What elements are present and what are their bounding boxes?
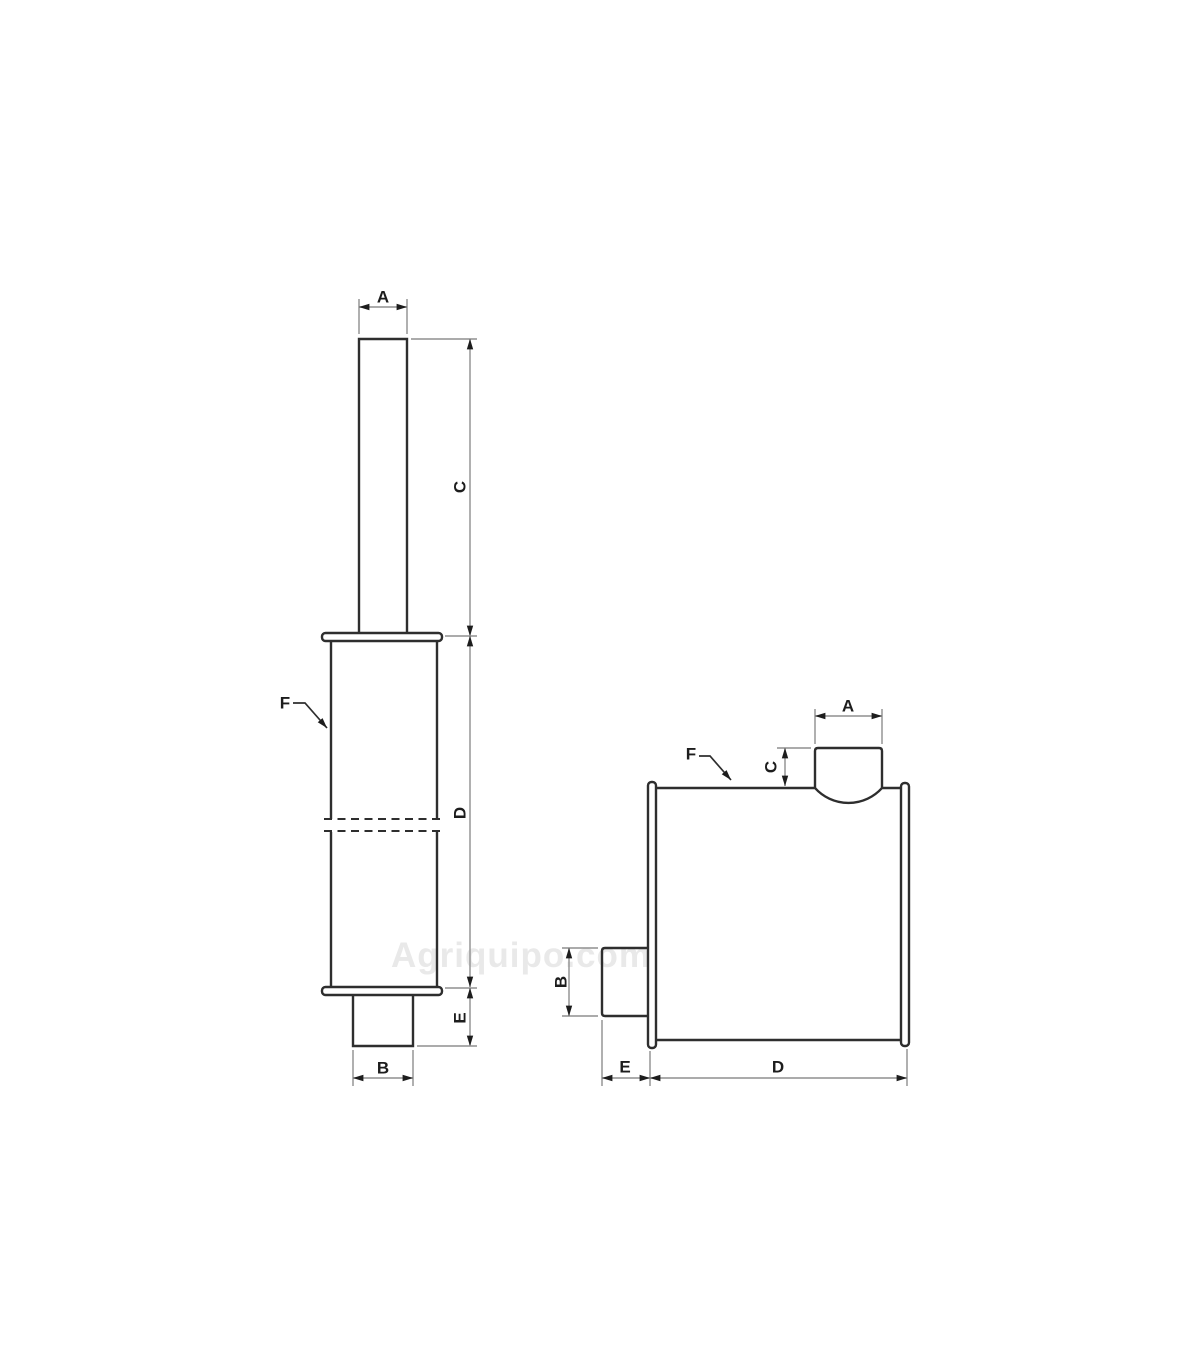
side-left-pipe bbox=[602, 948, 648, 1016]
front-view-dimensions bbox=[353, 299, 477, 1086]
front-dim-c-label: C bbox=[452, 481, 469, 493]
front-dim-e-label: E bbox=[452, 1012, 469, 1023]
front-bottom-cap bbox=[322, 987, 442, 995]
side-left-cap bbox=[648, 782, 656, 1048]
side-dim-e-label: E bbox=[619, 1059, 630, 1076]
front-bottom-pipe bbox=[353, 995, 413, 1046]
side-top-pipe bbox=[815, 748, 882, 788]
side-view-dimensions bbox=[562, 709, 907, 1086]
side-view-outline bbox=[602, 748, 909, 1048]
side-body-top bbox=[656, 788, 901, 803]
muffler-dimension-drawing bbox=[0, 0, 1200, 1372]
side-dim-d-label: D bbox=[772, 1059, 784, 1076]
side-dim-b-label: B bbox=[553, 976, 570, 988]
side-right-cap bbox=[901, 783, 909, 1046]
front-ref-f-label: F bbox=[280, 695, 290, 712]
front-top-cap bbox=[322, 633, 442, 641]
front-body-shell bbox=[331, 641, 437, 987]
technical-drawing-canvas: Agriquipo.com bbox=[0, 0, 1200, 1372]
side-ref-f-leader bbox=[699, 756, 731, 780]
side-ref-f-label: F bbox=[686, 746, 696, 763]
front-ref-f-leader bbox=[293, 703, 327, 728]
side-dim-a-label: A bbox=[842, 698, 854, 715]
front-top-pipe bbox=[359, 339, 407, 634]
front-body-break-lines bbox=[324, 819, 440, 831]
side-dim-c-label: C bbox=[763, 761, 780, 773]
front-view-outline bbox=[293, 339, 442, 1046]
front-dim-b-label: B bbox=[377, 1060, 389, 1077]
front-dim-d-label: D bbox=[452, 807, 469, 819]
front-dim-a-label: A bbox=[377, 289, 389, 306]
